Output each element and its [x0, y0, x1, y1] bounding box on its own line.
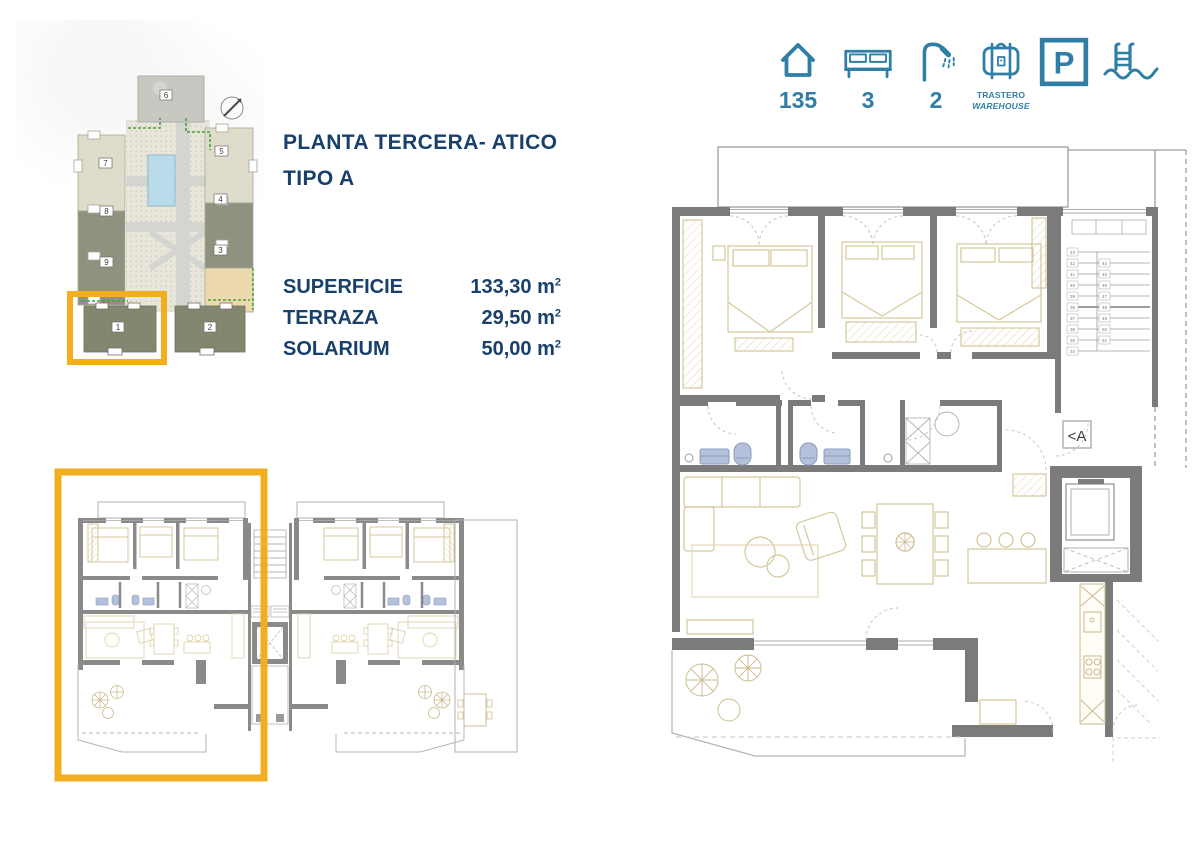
terrace-plants	[686, 655, 761, 721]
brochure-page: P 135 3 2 TRASTERO WAREHOUSE PLANTA TERC…	[0, 0, 1200, 849]
measurement-label: SUPERFICIE	[283, 276, 403, 299]
storage-suitcase-icon	[977, 36, 1025, 84]
value-text: 29,50 m	[481, 307, 554, 329]
stair-core	[248, 523, 292, 731]
unit-right	[292, 502, 464, 752]
unit-key-plan	[40, 450, 520, 810]
badge-5: 5	[219, 147, 224, 156]
measurement-label: TERRAZA	[283, 307, 379, 330]
measurement-row-terraza: TERRAZA 29,50 m2	[283, 307, 561, 338]
bathroom-count: 2	[910, 87, 962, 113]
amenities-bar: P 135 3 2 TRASTERO WAREHOUSE	[762, 34, 1174, 130]
badge-1: 1	[116, 323, 121, 332]
site-plan: 6 7 8 9 5 4 3 1 2	[60, 60, 280, 380]
unit-ref-tags	[251, 606, 289, 617]
section-ref-tag: <A	[1063, 421, 1091, 448]
measurement-value: 29,50 m2	[481, 307, 561, 330]
stair-num: 37	[1070, 316, 1076, 321]
unit-left	[78, 502, 250, 752]
stair-num: 38	[1070, 305, 1076, 310]
badge-8: 8	[104, 207, 109, 216]
stair-num: 44	[1102, 261, 1108, 266]
stair-num: 40	[1070, 283, 1076, 288]
measurements-table: SUPERFICIE 133,30 m2 TERRAZA 29,50 m2 SO…	[283, 276, 561, 369]
section-ref-label: <A	[1068, 428, 1087, 445]
bedroom-count: 3	[842, 87, 894, 113]
value-sup: 2	[555, 307, 561, 319]
main-floor-plan: 43 42 41 40 39 38 37 36 35 34 44 45 46 4…	[650, 140, 1200, 810]
stair-num: 48	[1102, 305, 1108, 310]
house-count: 135	[772, 87, 824, 113]
shower-icon	[917, 38, 957, 82]
storage-label-es: TRASTERO	[967, 90, 1035, 100]
courtyard	[126, 120, 210, 312]
kitchen	[1080, 584, 1105, 724]
badge-9: 9	[104, 258, 109, 267]
value-text: 50,00 m	[481, 338, 554, 360]
measurement-label: SOLARIUM	[283, 338, 390, 361]
badge-4: 4	[218, 195, 223, 204]
stair-num: 42	[1070, 261, 1076, 266]
storage-label-en: WAREHOUSE	[967, 101, 1035, 111]
badge-2: 2	[208, 323, 213, 332]
stair-num: 41	[1070, 272, 1076, 277]
bed-icon	[842, 46, 894, 82]
plan-title: PLANTA TERCERA- ATICO TIPO A	[283, 131, 557, 191]
measurement-value: 50,00 m2	[481, 338, 561, 361]
exterior-hatch	[1113, 600, 1160, 763]
measurement-row-superficie: SUPERFICIE 133,30 m2	[283, 276, 561, 307]
stair-num: 43	[1070, 250, 1076, 255]
value-sup: 2	[555, 276, 561, 288]
value-sup: 2	[555, 338, 561, 350]
badge-3: 3	[218, 246, 223, 255]
badge-6: 6	[164, 91, 169, 100]
value-text: 133,30 m	[470, 276, 555, 298]
stair-num: 34	[1070, 349, 1076, 354]
stair-num: 45	[1102, 272, 1108, 277]
page-title-line2: TIPO A	[283, 167, 557, 191]
right-terrace	[455, 520, 517, 752]
stair-num: 51	[1102, 338, 1108, 343]
stair-num: 47	[1102, 294, 1108, 299]
utility-room	[906, 412, 959, 464]
stair-num: 35	[1070, 338, 1076, 343]
terrace	[672, 650, 965, 756]
compass-icon	[221, 97, 243, 119]
landing-closets	[1072, 220, 1146, 234]
measurement-value: 133,30 m2	[470, 276, 561, 299]
stair-num: 49	[1102, 316, 1108, 321]
measurement-row-solarium: SOLARIUM 50,00 m2	[283, 338, 561, 369]
parking-icon: P	[1038, 36, 1090, 88]
site-buildings-left	[74, 131, 125, 305]
staircase: 43 42 41 40 39 38 37 36 35 34 44 45 46 4…	[1067, 248, 1150, 355]
stair-num: 36	[1070, 327, 1076, 332]
page-title-line1: PLANTA TERCERA- ATICO	[283, 131, 557, 155]
parking-letter: P	[1054, 45, 1075, 80]
house-icon	[777, 40, 819, 82]
stair-num: 50	[1102, 327, 1108, 332]
site-buildings-right	[205, 124, 257, 312]
elevator	[1064, 479, 1128, 572]
badge-7: 7	[103, 159, 108, 168]
stair-num: 39	[1070, 294, 1076, 299]
stair-num: 46	[1102, 283, 1108, 288]
pool-icon	[1102, 42, 1160, 84]
